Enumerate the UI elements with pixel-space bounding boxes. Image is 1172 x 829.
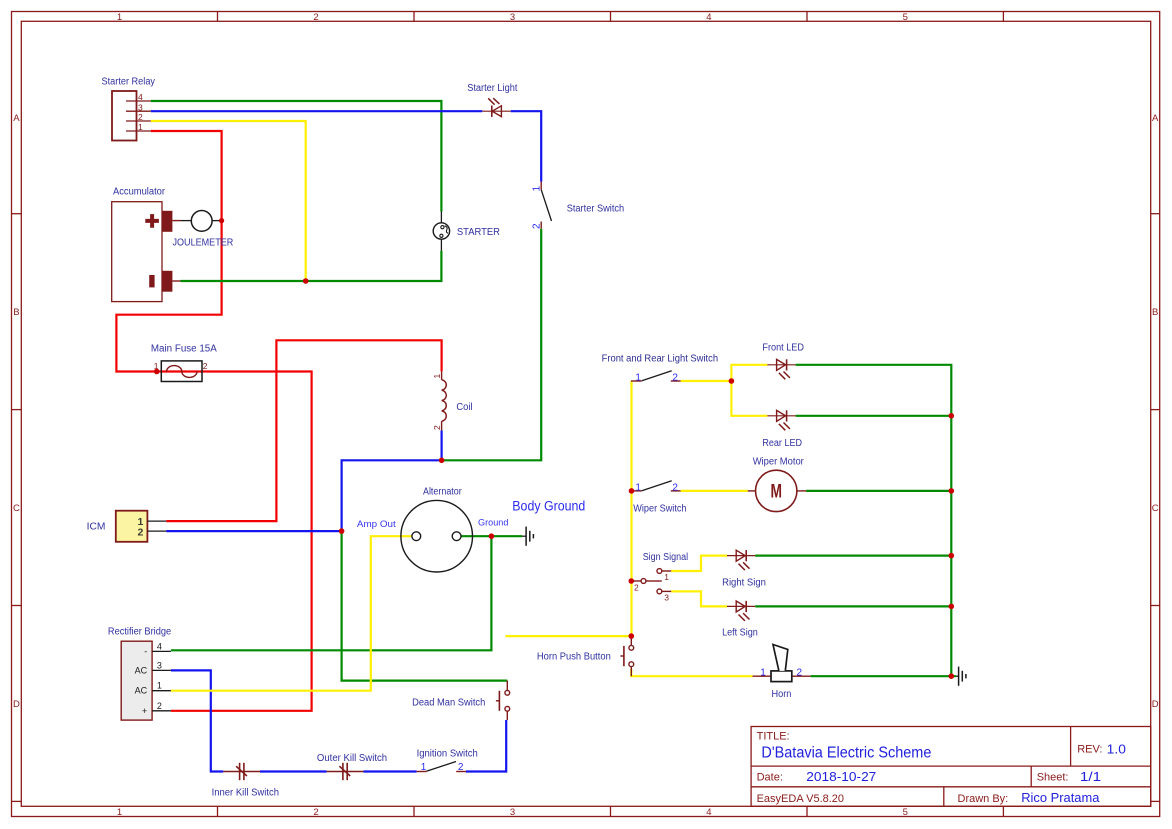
svg-text:1: 1 <box>664 572 669 582</box>
svg-text:ICM: ICM <box>87 522 106 533</box>
svg-text:Alternator: Alternator <box>423 487 462 498</box>
svg-text:2: 2 <box>157 701 162 711</box>
svg-text:2: 2 <box>313 12 318 23</box>
svg-text:3: 3 <box>157 660 162 670</box>
svg-text:C: C <box>1152 503 1159 514</box>
svg-text:Body Ground: Body Ground <box>512 499 585 514</box>
svg-text:Left Sign: Left Sign <box>722 628 758 639</box>
svg-text:4: 4 <box>706 12 711 23</box>
svg-text:AC: AC <box>135 665 148 675</box>
svg-text:+: + <box>142 706 147 716</box>
svg-text:STARTER: STARTER <box>457 227 500 238</box>
svg-text:4: 4 <box>706 807 711 818</box>
svg-text:M: M <box>770 480 782 502</box>
svg-text:Accumulator: Accumulator <box>113 187 166 198</box>
svg-text:Coil: Coil <box>456 402 472 413</box>
svg-text:1: 1 <box>760 667 766 678</box>
svg-text:Inner Kill Switch: Inner Kill Switch <box>212 788 279 799</box>
svg-text:D: D <box>13 699 20 710</box>
svg-text:2: 2 <box>203 361 208 371</box>
svg-text:-: - <box>144 646 147 656</box>
svg-text:2: 2 <box>672 372 678 383</box>
svg-text:Starter Switch: Starter Switch <box>567 203 625 214</box>
svg-text:2: 2 <box>138 112 143 122</box>
svg-text:Starter Light: Starter Light <box>467 83 517 94</box>
svg-text:B: B <box>1152 307 1158 318</box>
svg-text:2: 2 <box>634 583 639 593</box>
svg-text:1: 1 <box>635 482 641 493</box>
svg-text:1: 1 <box>635 372 641 383</box>
svg-text:Rear LED: Rear LED <box>762 438 802 449</box>
svg-text:1: 1 <box>138 122 143 132</box>
svg-text:Main Fuse 15A: Main Fuse 15A <box>151 344 217 355</box>
svg-text:Amp Out: Amp Out <box>357 519 396 530</box>
svg-text:Sheet:: Sheet: <box>1037 772 1069 784</box>
svg-text:Starter Relay: Starter Relay <box>102 77 156 88</box>
svg-text:Outer Kill Switch: Outer Kill Switch <box>317 753 387 764</box>
svg-text:C: C <box>13 503 20 514</box>
svg-text:Wiper Switch: Wiper Switch <box>633 504 686 515</box>
svg-text:Dead Man Switch: Dead Man Switch <box>412 698 485 709</box>
svg-text:3: 3 <box>510 807 515 818</box>
svg-text:1: 1 <box>432 374 442 379</box>
svg-text:Horn Push Button: Horn Push Button <box>537 652 611 663</box>
svg-text:1: 1 <box>117 807 122 818</box>
svg-text:EasyEDA V5.8.20: EasyEDA V5.8.20 <box>757 793 844 805</box>
svg-text:2: 2 <box>532 223 543 229</box>
svg-text:1: 1 <box>532 186 543 192</box>
svg-text:5: 5 <box>903 807 908 818</box>
svg-text:1/1: 1/1 <box>1080 769 1101 784</box>
svg-text:3: 3 <box>138 102 143 112</box>
svg-text:D: D <box>1152 699 1159 710</box>
svg-text:1: 1 <box>157 681 162 691</box>
svg-text:B: B <box>13 307 19 318</box>
svg-text:Wiper Motor: Wiper Motor <box>753 457 805 468</box>
svg-text:Horn: Horn <box>772 689 792 700</box>
svg-text:Front and Rear Light Switch: Front and Rear Light Switch <box>602 354 719 365</box>
svg-text:3: 3 <box>664 593 669 603</box>
svg-text:Right Sign: Right Sign <box>722 578 766 589</box>
svg-text:Drawn By:: Drawn By: <box>958 793 1009 805</box>
svg-text:AC: AC <box>135 686 148 696</box>
svg-text:D'Batavia Electric Scheme: D'Batavia Electric Scheme <box>761 745 931 762</box>
svg-text:Sign Signal: Sign Signal <box>643 552 688 563</box>
svg-text:3: 3 <box>510 12 515 23</box>
svg-text:A: A <box>1152 113 1159 124</box>
svg-text:Ground: Ground <box>478 518 508 529</box>
svg-text:2018-10-27: 2018-10-27 <box>806 769 876 784</box>
svg-text:Rico Pratama: Rico Pratama <box>1021 790 1100 805</box>
svg-text:2: 2 <box>138 527 144 539</box>
svg-text:2: 2 <box>432 425 442 430</box>
svg-text:2: 2 <box>313 807 318 818</box>
svg-text:5: 5 <box>903 12 908 23</box>
svg-text:JOULEMETER: JOULEMETER <box>173 237 234 248</box>
svg-text:4: 4 <box>157 641 162 651</box>
svg-text:REV:: REV: <box>1077 743 1102 755</box>
svg-text:Front LED: Front LED <box>762 343 804 354</box>
svg-text:A: A <box>13 113 20 124</box>
svg-text:2: 2 <box>458 762 464 773</box>
svg-text:2: 2 <box>797 667 803 678</box>
svg-text:Rectifier Bridge: Rectifier Bridge <box>108 626 172 637</box>
svg-text:4: 4 <box>138 92 143 102</box>
svg-text:TITLE:: TITLE: <box>757 731 790 743</box>
svg-text:1: 1 <box>421 762 427 773</box>
svg-text:1: 1 <box>117 12 122 23</box>
svg-text:Ignition Switch: Ignition Switch <box>417 748 478 759</box>
svg-text:Date:: Date: <box>757 772 783 784</box>
svg-text:2: 2 <box>672 482 678 493</box>
svg-text:1.0: 1.0 <box>1107 741 1126 756</box>
